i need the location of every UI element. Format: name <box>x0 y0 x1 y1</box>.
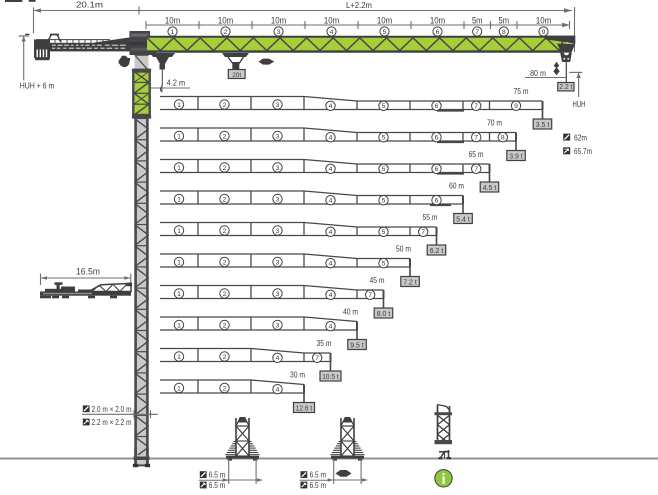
svg-text:40 m: 40 m <box>343 307 358 317</box>
svg-text:70 m: 70 m <box>487 118 502 128</box>
svg-text:4: 4 <box>329 166 333 173</box>
svg-text:9: 9 <box>514 103 518 110</box>
svg-text:6: 6 <box>435 198 439 205</box>
svg-text:8: 8 <box>501 135 505 142</box>
svg-text:6.5 m: 6.5 m <box>310 481 327 490</box>
svg-text:4: 4 <box>329 135 333 142</box>
svg-text:10m: 10m <box>377 16 392 26</box>
svg-text:1: 1 <box>177 354 181 361</box>
svg-text:HUH + 6 m: HUH + 6 m <box>20 81 55 91</box>
svg-text:10m: 10m <box>430 16 445 26</box>
svg-text:7: 7 <box>474 103 478 110</box>
svg-text:2.0 m × 2.0 m: 2.0 m × 2.0 m <box>92 405 132 414</box>
svg-text:3: 3 <box>276 322 280 329</box>
svg-text:20.1m: 20.1m <box>76 0 103 10</box>
svg-text:2: 2 <box>223 133 227 140</box>
svg-text:4: 4 <box>329 229 333 236</box>
svg-text:1: 1 <box>171 29 175 36</box>
svg-text:55 m: 55 m <box>423 212 438 222</box>
svg-text:HUH: HUH <box>573 99 586 109</box>
svg-text:45 m: 45 m <box>370 275 385 285</box>
svg-text:5m: 5m <box>499 16 510 26</box>
svg-text:20t: 20t <box>232 72 241 79</box>
svg-text:2: 2 <box>223 354 227 361</box>
svg-text:7: 7 <box>474 135 478 142</box>
svg-text:10.5 t: 10.5 t <box>322 372 339 381</box>
svg-text:3.9 t: 3.9 t <box>509 151 523 160</box>
svg-text:6: 6 <box>435 103 439 110</box>
svg-text:3: 3 <box>276 133 280 140</box>
svg-text:5: 5 <box>382 198 386 205</box>
svg-text:8.0 t: 8.0 t <box>377 309 391 318</box>
svg-text:1: 1 <box>177 165 181 172</box>
svg-text:2: 2 <box>223 322 227 329</box>
svg-text:5: 5 <box>382 261 386 268</box>
svg-text:10m: 10m <box>165 16 180 26</box>
svg-text:2: 2 <box>224 29 228 36</box>
svg-text:2: 2 <box>223 385 227 392</box>
svg-text:10m: 10m <box>271 16 286 26</box>
svg-text:1: 1 <box>177 385 181 392</box>
svg-text:4.5 t: 4.5 t <box>483 183 497 192</box>
svg-text:16.5m: 16.5m <box>76 267 100 277</box>
svg-text:1: 1 <box>177 291 181 298</box>
svg-text:6.2 t: 6.2 t <box>430 246 444 255</box>
svg-text:62m: 62m <box>574 132 587 142</box>
svg-text:7: 7 <box>421 229 425 236</box>
svg-text:6.5 m: 6.5 m <box>310 471 327 480</box>
svg-text:5: 5 <box>382 229 386 236</box>
svg-text:3: 3 <box>276 102 280 109</box>
svg-text:3.5 t: 3.5 t <box>536 120 550 129</box>
svg-text:9: 9 <box>542 29 546 36</box>
svg-text:1: 1 <box>177 322 181 329</box>
svg-text:2: 2 <box>223 259 227 266</box>
svg-text:2: 2 <box>223 196 227 203</box>
svg-text:10m: 10m <box>536 16 551 26</box>
svg-text:3: 3 <box>276 165 280 172</box>
svg-text:5: 5 <box>383 29 387 36</box>
svg-text:6: 6 <box>435 135 439 142</box>
svg-text:2: 2 <box>223 228 227 235</box>
svg-text:4: 4 <box>276 387 280 394</box>
svg-text:7: 7 <box>474 166 478 173</box>
svg-text:1: 1 <box>177 196 181 203</box>
svg-text:1: 1 <box>177 133 181 140</box>
svg-text:5: 5 <box>382 103 386 110</box>
svg-text:80 m: 80 m <box>530 68 546 78</box>
svg-text:50 m: 50 m <box>396 244 411 254</box>
svg-text:65 m: 65 m <box>469 149 484 159</box>
svg-text:4: 4 <box>329 324 333 331</box>
svg-text:3: 3 <box>276 196 280 203</box>
svg-text:30 m: 30 m <box>290 370 305 380</box>
svg-text:10m: 10m <box>218 16 233 26</box>
svg-text:7.2 t: 7.2 t <box>403 277 417 286</box>
svg-text:3: 3 <box>276 259 280 266</box>
svg-text:2: 2 <box>223 102 227 109</box>
svg-text:75 m: 75 m <box>514 86 529 96</box>
svg-text:2: 2 <box>223 165 227 172</box>
svg-text:7: 7 <box>368 292 372 299</box>
svg-text:4: 4 <box>276 355 280 362</box>
svg-text:4: 4 <box>329 198 333 205</box>
svg-text:3: 3 <box>276 291 280 298</box>
svg-text:5m: 5m <box>472 16 483 26</box>
svg-text:35 m: 35 m <box>317 338 332 348</box>
svg-text:1: 1 <box>177 259 181 266</box>
svg-text:3: 3 <box>276 228 280 235</box>
svg-text:10m: 10m <box>324 16 339 26</box>
svg-text:6: 6 <box>435 166 439 173</box>
svg-text:65.7m: 65.7m <box>574 146 592 156</box>
svg-text:12.6 t: 12.6 t <box>296 403 313 412</box>
svg-text:1: 1 <box>177 228 181 235</box>
svg-text:2.2 t: 2.2 t <box>559 82 572 91</box>
svg-text:4: 4 <box>329 103 333 110</box>
svg-text:5: 5 <box>382 166 386 173</box>
svg-text:5.4 t: 5.4 t <box>456 214 470 223</box>
svg-text:60 m: 60 m <box>449 181 464 191</box>
svg-text:i: i <box>441 472 445 488</box>
svg-text:L+2.2m: L+2.2m <box>346 1 372 10</box>
svg-text:4: 4 <box>329 292 333 299</box>
svg-text:2.2 m × 2.2 m: 2.2 m × 2.2 m <box>92 418 132 427</box>
svg-text:4.2 m: 4.2 m <box>167 78 185 88</box>
svg-text:9.5 t: 9.5 t <box>350 340 364 349</box>
svg-text:3: 3 <box>277 29 281 36</box>
svg-text:4: 4 <box>329 261 333 268</box>
svg-text:6: 6 <box>436 29 440 36</box>
svg-text:7: 7 <box>315 355 319 362</box>
svg-text:4: 4 <box>330 29 334 36</box>
svg-text:8: 8 <box>502 29 506 36</box>
svg-text:6.5 m: 6.5 m <box>209 471 226 480</box>
svg-text:1: 1 <box>177 102 181 109</box>
svg-text:6.5 m: 6.5 m <box>209 481 226 490</box>
svg-text:5: 5 <box>382 135 386 142</box>
svg-text:2: 2 <box>223 291 227 298</box>
svg-text:7: 7 <box>475 29 479 36</box>
